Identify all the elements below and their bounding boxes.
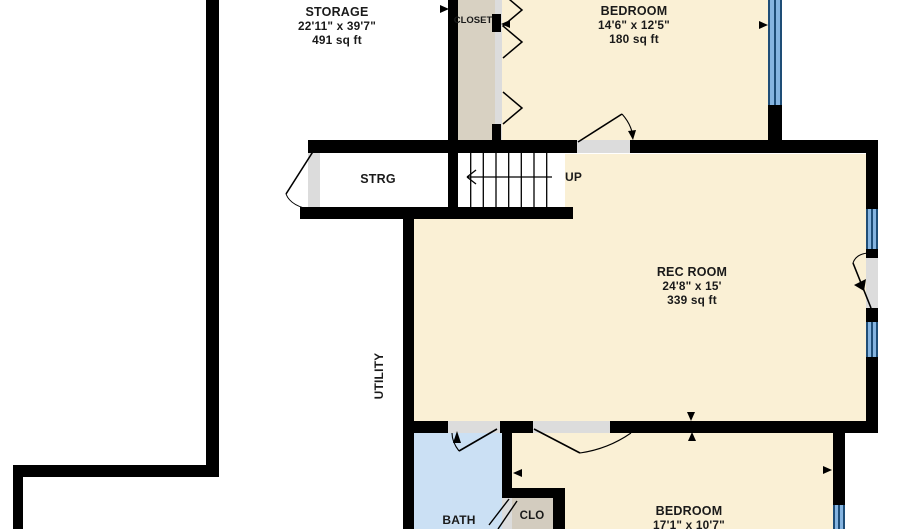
- room-rec-main-area: [414, 219, 866, 422]
- storage-name: STORAGE: [272, 5, 402, 19]
- clo-name: CLO: [509, 509, 555, 523]
- wall-bottom-left-vert: [13, 465, 23, 529]
- wall-strg-stairs-bottom: [300, 207, 573, 219]
- window-rec-room-lower: [866, 322, 878, 357]
- wall-rec-right-3: [866, 308, 878, 322]
- bedroom-upper-area: 180 sq ft: [569, 32, 699, 46]
- door-opening-bedroom-lower: [533, 421, 610, 433]
- label-storage: STORAGE 22'11" x 39'7" 491 sq ft: [272, 5, 402, 47]
- bedroom-lower-dims: 17'1" x 10'7": [624, 518, 754, 529]
- bedroom-upper-name: BEDROOM: [569, 4, 699, 18]
- wall-left-exterior: [206, 0, 219, 477]
- label-rec-room: REC ROOM 24'8" x 15' 339 sq ft: [627, 265, 757, 307]
- label-bedroom-upper: BEDROOM 14'6" x 12'5" 180 sq ft: [569, 4, 699, 46]
- wall-rec-right-2: [866, 249, 878, 258]
- stairs-up-arrow-icon: [467, 170, 552, 184]
- wall-rec-bottom-3: [610, 421, 878, 433]
- bath-name: BATH: [429, 513, 489, 527]
- wall-run-a-left: [308, 140, 577, 153]
- bedroom-lower-name: BEDROOM: [624, 504, 754, 518]
- utility-name: UTILITY: [372, 331, 386, 421]
- bedroom-upper-dims: 14'6" x 12'5": [569, 18, 699, 32]
- storage-dims: 22'11" x 39'7": [272, 19, 402, 33]
- rec-room-dims: 24'8" x 15': [627, 279, 757, 293]
- stairs-treads: [471, 153, 547, 207]
- window-rec-room-upper: [866, 209, 878, 249]
- room-rec-upper-area: [565, 154, 866, 220]
- wall-rec-bottom-2: [500, 421, 533, 433]
- wall-utility: [403, 207, 414, 529]
- door-opening-rec-exterior: [866, 258, 878, 308]
- label-clo: CLO: [509, 509, 555, 523]
- floor-plan: STORAGE 22'11" x 39'7" 491 sq ft CLOSET …: [0, 0, 900, 529]
- rec-room-name: REC ROOM: [627, 265, 757, 279]
- wall-bottom-left-horiz: [13, 465, 219, 477]
- wall-bedroom-lower-right: [833, 433, 845, 505]
- label-bedroom-lower: BEDROOM 17'1" x 10'7": [624, 504, 754, 529]
- door-opening-bedroom-upper: [577, 140, 630, 153]
- door-opening-bath: [448, 421, 500, 433]
- label-utility: UTILITY: [372, 331, 386, 421]
- stairs-up-label: UP: [565, 170, 605, 184]
- rec-room-area: 339 sq ft: [627, 293, 757, 307]
- strg-name: STRG: [340, 172, 416, 186]
- wall-run-a-right: [630, 140, 878, 153]
- storage-area: 491 sq ft: [272, 33, 402, 47]
- door-opening-strg: [308, 153, 320, 207]
- label-strg: STRG: [340, 172, 416, 186]
- label-closet: CLOSET: [445, 15, 501, 26]
- wall-bedroom-upper-corner: [768, 105, 782, 140]
- wall-rec-bottom-1: [403, 421, 448, 433]
- wall-rec-right-4: [866, 357, 878, 433]
- window-bedroom-lower: [833, 505, 845, 529]
- label-up: UP: [565, 170, 605, 184]
- label-bath: BATH: [429, 513, 489, 527]
- closet-name: CLOSET: [445, 15, 501, 26]
- window-bedroom-upper: [768, 0, 782, 105]
- wall-rec-right-1: [866, 140, 878, 209]
